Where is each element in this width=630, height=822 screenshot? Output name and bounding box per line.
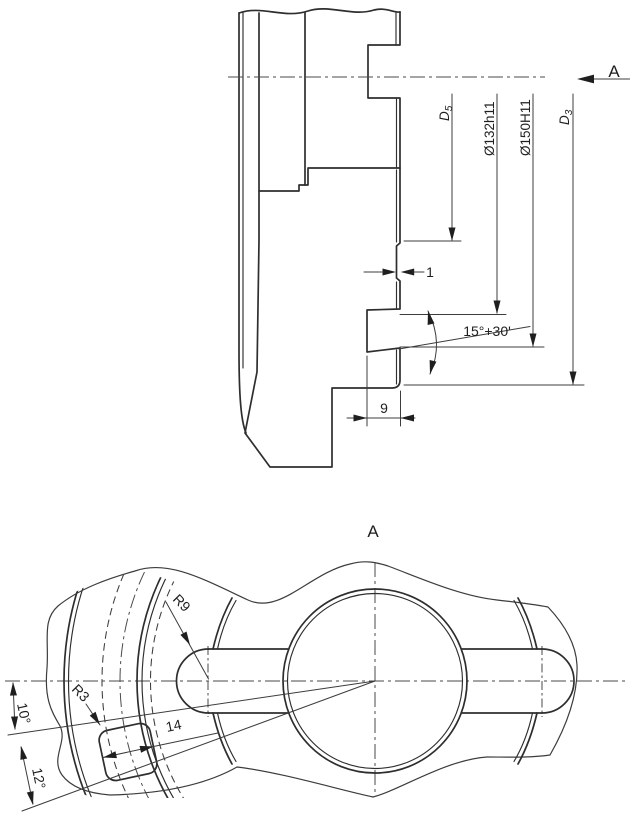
groove-angle-dimension: 15°+30' xyxy=(399,310,530,375)
pocket-radius-dimension: R3 xyxy=(69,681,103,727)
label-relief-width: 1 xyxy=(426,264,434,280)
section-cut-arrow: A xyxy=(577,62,630,83)
detail-view-title: A xyxy=(367,522,379,541)
section-view: D5 Ø132h11 Ø150H11 D3 1 15°+30' xyxy=(228,9,630,467)
label-angle-10: 10° xyxy=(14,701,34,725)
diameter-dimensions: D5 Ø132h11 Ø150H11 D3 xyxy=(400,94,584,385)
label-angle-12: 12° xyxy=(29,766,49,790)
part-top-break-line xyxy=(239,9,400,14)
angle-12-dimension: 12° xyxy=(18,745,50,805)
ray-10deg xyxy=(8,681,375,735)
label-r3: R3 xyxy=(69,681,93,705)
face-rings-hidden xyxy=(102,408,630,822)
label-groove-angle: 15°+30' xyxy=(463,323,511,339)
label-dia-132: Ø132h11 xyxy=(482,101,497,156)
label-r9: R9 xyxy=(170,591,194,615)
section-cut-area xyxy=(245,168,400,467)
drawing-canvas: D5 Ø132h11 Ø150H11 D3 1 15°+30' xyxy=(0,0,630,822)
slot-radius-dimension: R9 xyxy=(166,591,209,679)
label-d3: D3 xyxy=(557,109,575,125)
engineering-drawing: D5 Ø132h11 Ø150H11 D3 1 15°+30' xyxy=(0,0,630,822)
relief-width-dimension: 1 xyxy=(364,264,434,280)
label-groove-depth: 9 xyxy=(380,400,388,416)
label-pocket-width: 14 xyxy=(164,716,183,735)
face-rings xyxy=(64,370,630,822)
detail-view-a: A xyxy=(5,370,630,822)
part-right-profile xyxy=(368,12,400,168)
angle-10-dimension: 10° xyxy=(10,682,35,730)
groove-depth-dimension: 9 xyxy=(347,356,415,426)
label-dia-150: Ø150H11 xyxy=(518,99,533,156)
label-cut-arrow-a: A xyxy=(608,62,620,81)
detail-outline xyxy=(46,562,577,797)
pocket-width-dimension: 14 xyxy=(102,716,218,761)
